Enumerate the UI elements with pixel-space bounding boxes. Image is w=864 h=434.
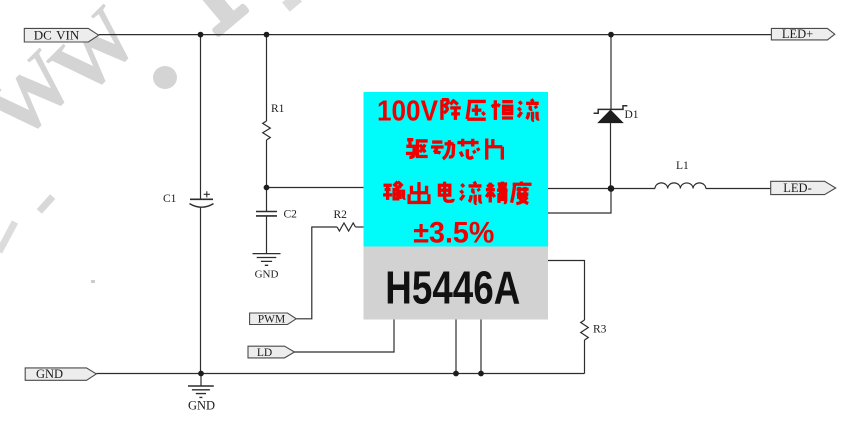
svg-text:LED-: LED-	[783, 181, 811, 195]
svg-text:LED+: LED+	[782, 27, 813, 41]
svg-text:GND: GND	[188, 399, 215, 413]
svg-text:GND: GND	[36, 367, 63, 381]
svg-text:C1: C1	[163, 193, 177, 205]
svg-text:L1: L1	[676, 160, 689, 172]
svg-text:D1: D1	[625, 109, 639, 121]
svg-text:C2: C2	[284, 209, 298, 221]
svg-text:PWM: PWM	[258, 314, 285, 326]
svg-text:R1: R1	[271, 103, 285, 115]
svg-text:R3: R3	[593, 324, 607, 336]
svg-text:100V: 100V	[377, 96, 439, 128]
svg-text:R2: R2	[334, 209, 348, 221]
svg-text:±3.5%: ±3.5%	[413, 217, 494, 250]
svg-text:LD: LD	[257, 347, 272, 359]
svg-text:DC VIN: DC VIN	[34, 27, 80, 42]
svg-text:GND: GND	[255, 269, 279, 281]
svg-text:H5446A: H5446A	[385, 262, 520, 314]
